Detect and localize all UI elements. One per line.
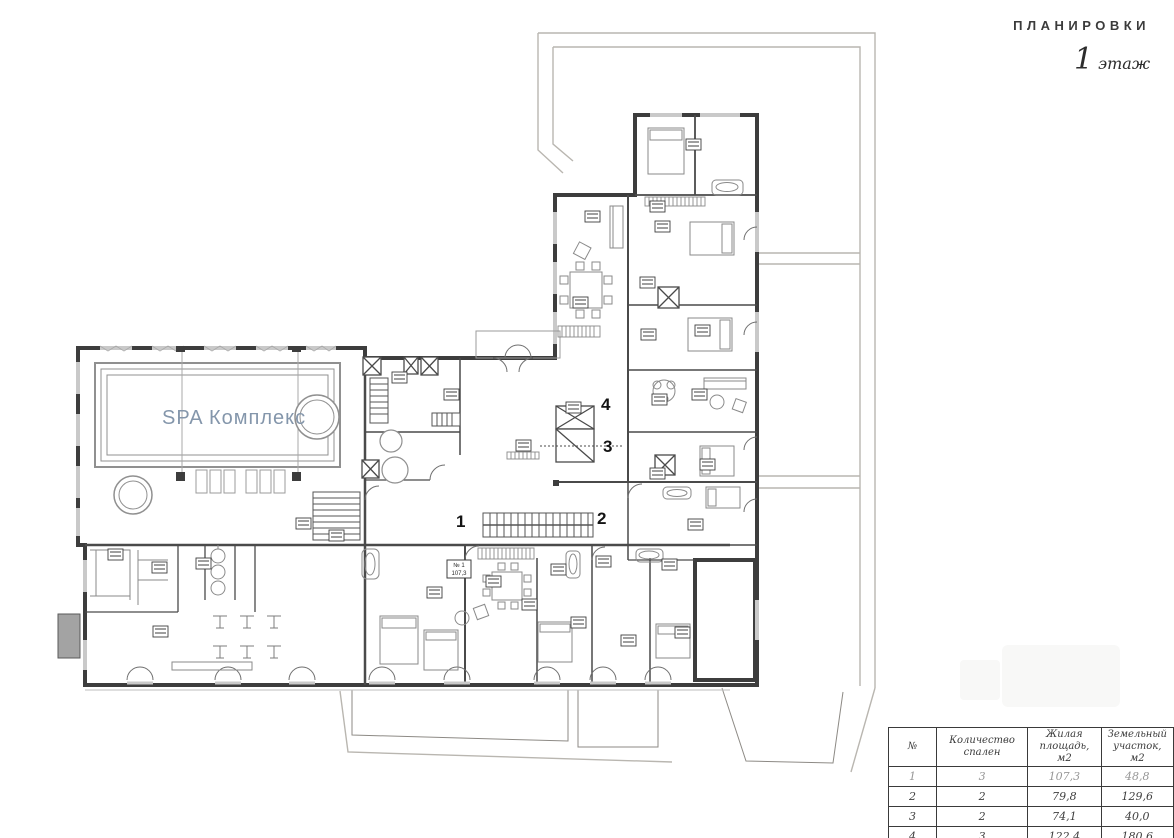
cell-number: 1 [889,767,937,787]
floor-number: 1 [1074,42,1093,77]
floorplan-drawing: № 1 107,3 SPA Комплекс 1 2 3 4 [0,0,1174,838]
apartment1-tag-area: 107,3 [451,571,467,577]
table-row: 2 2 79,8 129,6 [889,787,1174,807]
col-bedrooms: Количество спален [936,728,1027,767]
floor-label: 1этаж [1013,45,1150,75]
cell-land-area: 40,0 [1101,807,1173,827]
cell-number: 4 [889,827,937,838]
apartment1-tag: № 1 107,3 [447,560,471,578]
cell-land-area: 180,6 [1101,827,1173,838]
cell-living-area: 107,3 [1028,767,1101,787]
cell-bedrooms: 2 [936,787,1027,807]
terrace [695,560,755,680]
table-row: 4 3 122,4 180,6 [889,827,1174,838]
apartment-number-2: 2 [597,509,606,528]
cell-number: 2 [889,787,937,807]
page-title: ПЛАНИРОВКИ [1013,18,1150,33]
cell-living-area: 74,1 [1028,807,1101,827]
stairs-main [483,513,593,537]
cell-living-area: 122,4 [1028,827,1101,838]
watermark-ghost [960,645,1120,707]
cell-number: 3 [889,807,937,827]
table-row: 3 2 74,1 40,0 [889,807,1174,827]
cell-bedrooms: 2 [936,807,1027,827]
col-living-area: Жилая площадь, м2 [1028,728,1101,767]
apartment1-tag-number: № 1 [453,562,465,569]
cell-land-area: 48,8 [1101,767,1173,787]
col-land-area: Земельный участок, м2 [1101,728,1173,767]
apartments-table-wrap: № Количество спален Жилая площадь, м2 Зе… [888,727,1174,838]
entrance-porch [58,614,80,658]
floorplan-page: № 1 107,3 SPA Комплекс 1 2 3 4 ПЛАНИРОВК… [0,0,1174,838]
header: ПЛАНИРОВКИ 1этаж [1013,18,1150,75]
spa-label: SPA Комплекс [162,407,306,429]
floor-word: этаж [1098,54,1150,73]
cell-bedrooms: 3 [936,827,1027,838]
table-row: 1 3 107,3 48,8 [889,767,1174,787]
cell-bedrooms: 3 [936,767,1027,787]
apartment-number-3: 3 [603,437,612,456]
cell-living-area: 79,8 [1028,787,1101,807]
col-number: № [889,728,937,767]
table-header-row: № Количество спален Жилая площадь, м2 Зе… [889,728,1174,767]
cell-land-area: 129,6 [1101,787,1173,807]
north-entry-canopy [476,331,560,358]
apartment-number-1: 1 [456,512,465,531]
apartments-table: № Количество спален Жилая площадь, м2 Зе… [888,727,1174,838]
apartment-number-4: 4 [601,395,611,414]
